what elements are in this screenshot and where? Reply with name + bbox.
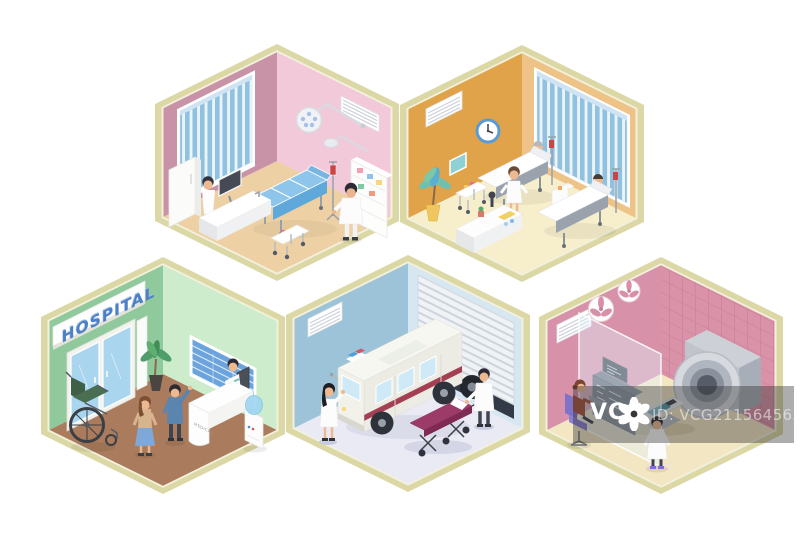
room-reception: HOSPITAL HOSPITAL MEDICAL: [41, 257, 285, 494]
ventilation-fan-icon: [618, 280, 640, 302]
vcg-flower-icon: [617, 397, 651, 431]
vcg-watermark-band: VCG ID: VCG211564563893: [573, 386, 794, 443]
illustration-canvas: HOSPITAL HOSPITAL MEDICAL: [0, 0, 800, 559]
vcg-image-id: ID: VCG211564563893: [652, 406, 800, 424]
room-garage: [286, 255, 530, 492]
room-scan: [539, 257, 783, 494]
wheel-hub: [468, 383, 477, 392]
wall-clock-icon: [477, 120, 499, 142]
room-ward: [400, 45, 644, 282]
ventilation-fan-icon: [589, 297, 614, 322]
room-operating: [155, 44, 399, 281]
